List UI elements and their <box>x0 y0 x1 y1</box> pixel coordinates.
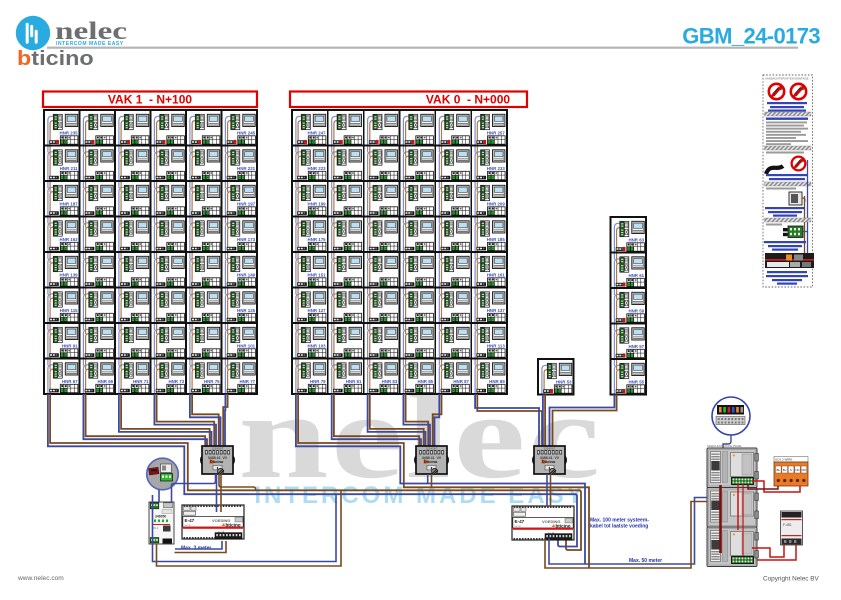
svg-text:NO: NO <box>802 468 807 472</box>
svg-text:HNR 197: HNR 197 <box>237 202 256 207</box>
svg-text:bticino: bticino <box>17 47 94 70</box>
svg-text:HNR 163: HNR 163 <box>60 237 79 242</box>
svg-text:HNR 235: HNR 235 <box>60 131 79 136</box>
svg-text:HNR 223: HNR 223 <box>308 166 327 171</box>
svg-text:SFERA ENTRANCE PANEL: SFERA ENTRANCE PANEL <box>707 444 743 448</box>
svg-text:BL: BL <box>776 468 780 472</box>
svg-text:HNR 87: HNR 87 <box>453 379 469 384</box>
svg-text:HNR 89: HNR 89 <box>489 379 505 384</box>
svg-text:HNR 127: HNR 127 <box>308 308 327 313</box>
svg-text:HNR 101: HNR 101 <box>237 344 256 349</box>
svg-text:VAK 1 - N+100: VAK 1 - N+100 <box>108 93 192 107</box>
svg-text:HNR 173: HNR 173 <box>237 237 256 242</box>
svg-text:HNR 77: HNR 77 <box>239 379 255 384</box>
svg-text:INTERCOM MADE EASY: INTERCOM MADE EASY <box>254 482 585 509</box>
svg-text:HNR 79: HNR 79 <box>310 379 326 384</box>
svg-text:HNR 85: HNR 85 <box>417 379 433 384</box>
svg-text:HNR 257: HNR 257 <box>487 131 506 136</box>
svg-text:HNR 71: HNR 71 <box>133 379 149 384</box>
svg-text:VAK 0 - N+000: VAK 0 - N+000 <box>426 93 510 107</box>
svg-text:HNR 187: HNR 187 <box>60 202 79 207</box>
svg-text:HNR 73: HNR 73 <box>168 379 184 384</box>
svg-text:F-4S1: F-4S1 <box>783 523 792 527</box>
svg-text:HNR 53: HNR 53 <box>556 380 572 385</box>
svg-text:HNR 175: HNR 175 <box>308 237 327 242</box>
svg-text:HNR 63: HNR 63 <box>628 238 644 243</box>
svg-text:Copyright Nelec BV: Copyright Nelec BV <box>763 576 820 583</box>
svg-text:HNR 247: HNR 247 <box>308 131 327 136</box>
svg-text:HNR 245: HNR 245 <box>237 131 256 136</box>
svg-text:HNR 149: HNR 149 <box>237 273 256 278</box>
svg-text:GBM_24-0173: GBM_24-0173 <box>682 24 820 49</box>
svg-text:HNR 91: HNR 91 <box>62 344 78 349</box>
svg-text:HNR 57: HNR 57 <box>628 344 644 349</box>
svg-text:HNR 137: HNR 137 <box>487 308 506 313</box>
svg-text:Max. 50 meter: Max. 50 meter <box>629 558 662 564</box>
svg-text:HNR 69: HNR 69 <box>97 379 113 384</box>
svg-text:HNR 59: HNR 59 <box>628 309 644 314</box>
svg-text:HNR 211: HNR 211 <box>60 166 78 171</box>
svg-text:HNR 113: HNR 113 <box>487 344 505 349</box>
svg-text:HNR 81: HNR 81 <box>346 379 362 384</box>
svg-text:HNR 67: HNR 67 <box>62 379 78 384</box>
svg-text:B+: B+ <box>783 468 787 472</box>
svg-text:HNR 83: HNR 83 <box>382 379 398 384</box>
svg-text:HNR 161: HNR 161 <box>487 273 506 278</box>
svg-text:HNR 61: HNR 61 <box>628 273 644 278</box>
svg-text:HNR 125: HNR 125 <box>237 308 256 313</box>
svg-text:HNR 139: HNR 139 <box>60 273 79 278</box>
svg-text:HNR 233: HNR 233 <box>487 166 506 171</box>
svg-text:SCS 2 WIRE: SCS 2 WIRE <box>775 458 792 462</box>
svg-text:HNR 151: HNR 151 <box>308 273 327 278</box>
svg-text:www.nelec.com: www.nelec.com <box>17 575 64 582</box>
svg-text:HNR 221: HNR 221 <box>237 166 256 171</box>
svg-text:AANDACHTSPUNTEN MONTAGE: AANDACHTSPUNTEN MONTAGE <box>765 77 809 81</box>
svg-text:HNR 199: HNR 199 <box>308 202 327 207</box>
svg-text:HNR 209: HNR 209 <box>487 202 506 207</box>
svg-text:HNR 103: HNR 103 <box>308 344 327 349</box>
svg-text:HNR 75: HNR 75 <box>204 379 220 384</box>
svg-text:kabel tot laatste voeding: kabel tot laatste voeding <box>590 524 648 530</box>
svg-text:HNR 55: HNR 55 <box>628 380 644 385</box>
svg-text:HNR 185: HNR 185 <box>487 237 506 242</box>
svg-text:HNR 115: HNR 115 <box>60 308 78 313</box>
